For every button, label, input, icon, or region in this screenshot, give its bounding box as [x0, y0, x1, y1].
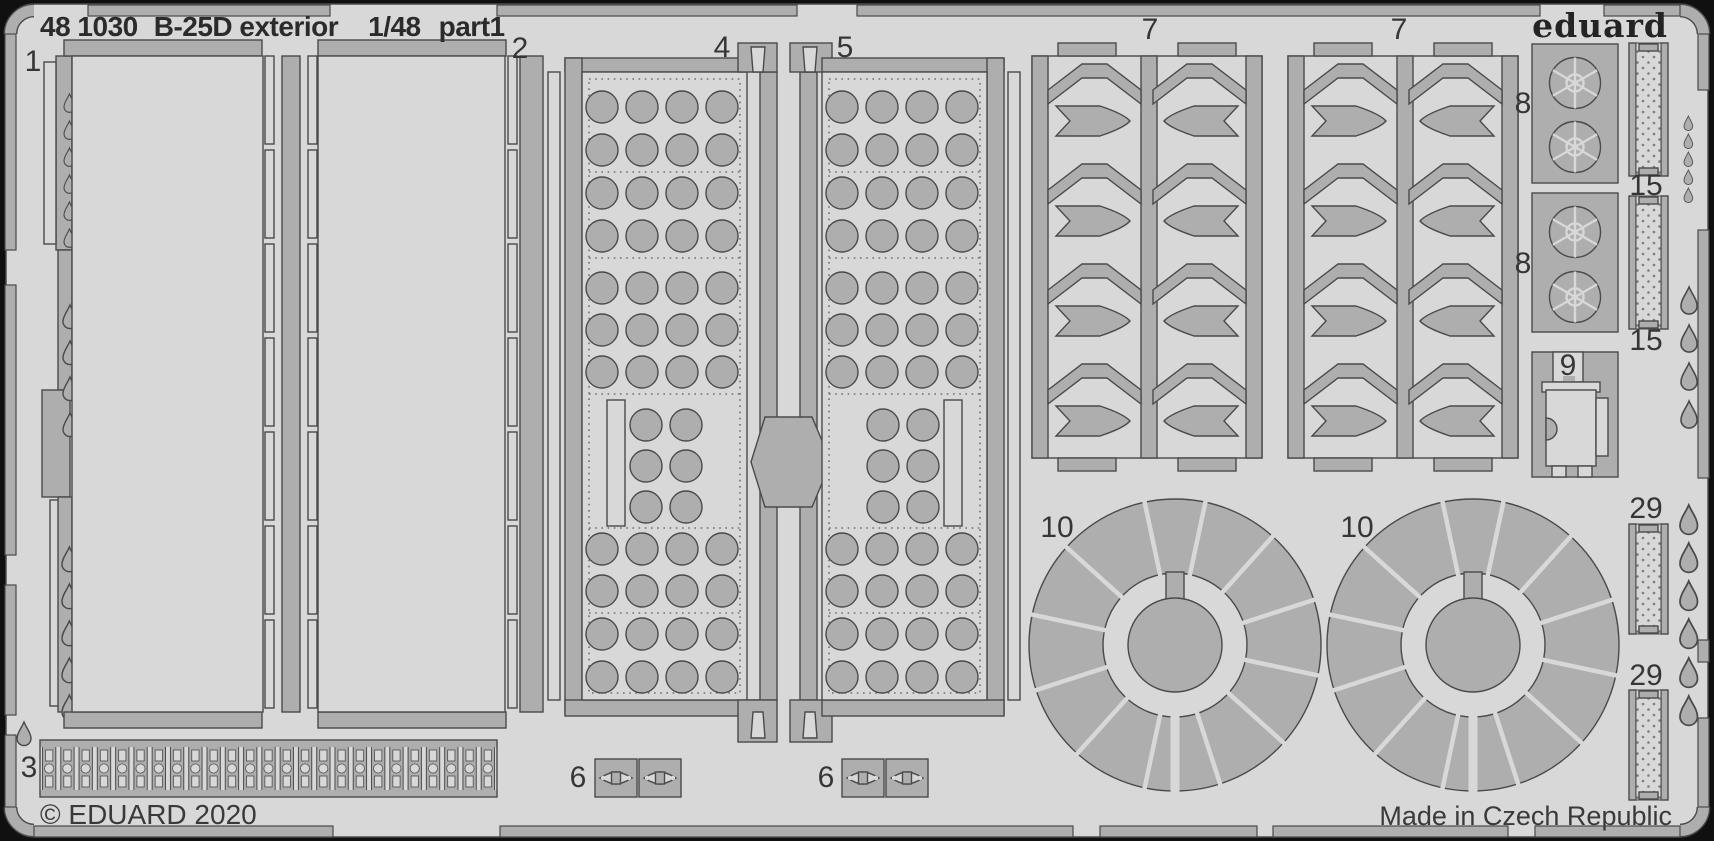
part-29-strip-b	[1629, 690, 1668, 800]
part-8-rosettes-b	[1532, 193, 1618, 332]
part-label-8: 8	[1515, 87, 1532, 121]
part-3-comb	[40, 740, 497, 797]
part-15-strip-b	[1629, 196, 1668, 329]
part-label-29: 29	[1629, 659, 1662, 693]
part-15-strip-a	[1629, 43, 1668, 176]
part-2-panel	[318, 40, 506, 728]
part-1-panel	[64, 40, 263, 728]
part-label-7: 7	[1142, 13, 1159, 47]
part-label-3: 3	[21, 751, 38, 785]
part-label-6: 6	[570, 761, 587, 795]
kit-scale: 1/48	[368, 11, 421, 43]
part-4-plate	[565, 58, 764, 716]
eduard-logo: eduard	[1532, 6, 1668, 45]
part-label-2: 2	[512, 32, 529, 66]
part-5-plate	[822, 58, 1004, 716]
right-sprue-strip	[1008, 72, 1020, 700]
fret-sheet-art	[0, 0, 1714, 841]
part-29-strip-a	[1629, 524, 1668, 634]
part-label-9: 9	[1560, 349, 1577, 383]
part-8-rosettes-a	[1532, 44, 1618, 183]
part-label-6: 6	[818, 761, 835, 795]
panel-divider-sprue	[265, 56, 317, 712]
part-label-1: 1	[25, 45, 42, 79]
made-in-text: Made in Czech Republic	[1379, 801, 1672, 832]
part-label-8: 8	[1515, 247, 1532, 281]
part-label-10: 10	[1340, 511, 1373, 545]
mid-sprue-columns	[508, 56, 560, 712]
sheet-title: 48 1030 B-25D exterior 1/48 part1	[40, 11, 505, 43]
sheet-part-number: part1	[439, 11, 505, 43]
catalog-number: 48 1030	[40, 11, 138, 43]
part-label-4: 4	[714, 31, 731, 65]
part-label-29: 29	[1629, 492, 1662, 526]
part-label-5: 5	[837, 31, 854, 65]
part-7-cowl-flaps-a	[1032, 43, 1262, 471]
part-label-15: 15	[1629, 169, 1662, 203]
copyright-text: © EDUARD 2020	[40, 799, 257, 831]
part-label-10: 10	[1040, 511, 1073, 545]
part-label-7: 7	[1391, 13, 1408, 47]
kit-title: B-25D exterior	[154, 11, 338, 43]
part-7-cowl-flaps-b	[1288, 43, 1518, 471]
part-label-15: 15	[1629, 324, 1662, 358]
photo-etch-fret-image: 48 1030 B-25D exterior 1/48 part1 eduard…	[0, 0, 1714, 841]
